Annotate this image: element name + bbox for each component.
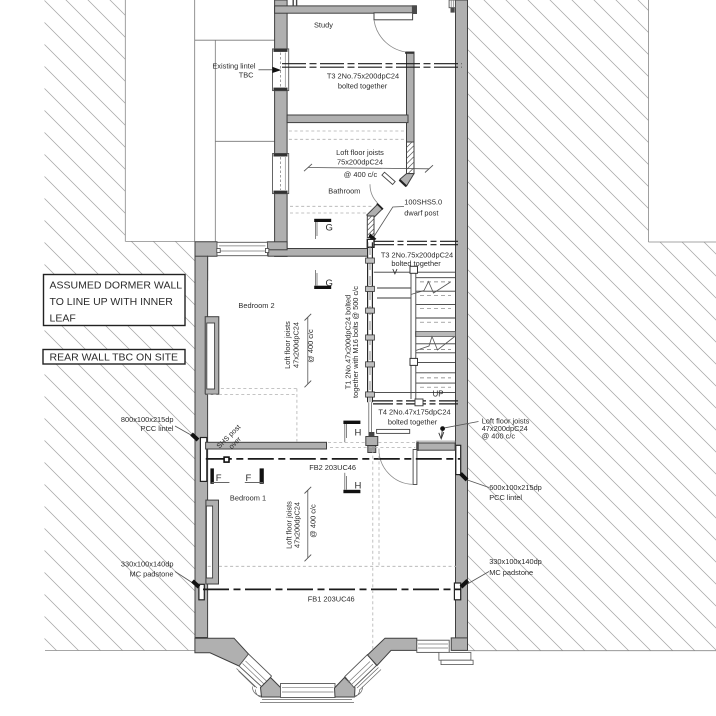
svg-text:@ 400 c/c: @ 400 c/c bbox=[309, 504, 318, 538]
svg-text:PCC lintel: PCC lintel bbox=[141, 424, 174, 433]
svg-text:REAR WALL TBC ON SITE: REAR WALL TBC ON SITE bbox=[50, 352, 179, 364]
svg-text:330x100x140dp: 330x100x140dp bbox=[121, 560, 174, 569]
svg-text:PCC lintel: PCC lintel bbox=[489, 493, 522, 502]
svg-text:330x100x140dp: 330x100x140dp bbox=[489, 557, 542, 566]
svg-text:G: G bbox=[326, 223, 333, 234]
svg-text:Bedroom 2: Bedroom 2 bbox=[238, 301, 274, 310]
svg-text:T3 2No.75x200dpC24: T3 2No.75x200dpC24 bbox=[327, 72, 399, 81]
svg-text:bolted together: bolted together bbox=[388, 418, 438, 427]
svg-text:MC padstone: MC padstone bbox=[489, 568, 533, 577]
svg-text:LEAF: LEAF bbox=[50, 313, 76, 325]
svg-text:F: F bbox=[216, 473, 222, 484]
svg-text:@ 400 c/c: @ 400 c/c bbox=[344, 170, 378, 179]
svg-text:FB1 203UC46: FB1 203UC46 bbox=[308, 595, 355, 604]
svg-text:bolted together: bolted together bbox=[391, 259, 441, 268]
svg-text:600x100x215dp: 600x100x215dp bbox=[489, 483, 542, 492]
svg-text:@ 400 c/c: @ 400 c/c bbox=[306, 329, 315, 363]
svg-text:47x200dpC24: 47x200dpC24 bbox=[293, 502, 302, 548]
svg-text:ASSUMED DORMER WALL: ASSUMED DORMER WALL bbox=[50, 280, 183, 292]
svg-text:Bathroom: Bathroom bbox=[328, 187, 360, 196]
svg-text:together with M16 bolts @ 500: together with M16 bolts @ 500 c/c bbox=[351, 286, 360, 398]
svg-text:F: F bbox=[246, 473, 252, 484]
svg-text:UP: UP bbox=[433, 390, 444, 399]
svg-text:H: H bbox=[355, 481, 362, 492]
svg-text:@ 400 c/c: @ 400 c/c bbox=[482, 432, 516, 441]
svg-text:Existing lintel: Existing lintel bbox=[212, 62, 255, 71]
svg-text:TBC: TBC bbox=[239, 71, 254, 80]
svg-text:800x100x215dp: 800x100x215dp bbox=[121, 415, 174, 424]
svg-text:Loft floor joists: Loft floor joists bbox=[336, 148, 384, 157]
svg-text:TO LINE UP WITH INNER: TO LINE UP WITH INNER bbox=[50, 296, 174, 308]
svg-text:47x200dpC24: 47x200dpC24 bbox=[292, 322, 301, 368]
svg-text:G: G bbox=[326, 278, 333, 289]
svg-text:T4 2No.47x175dpC24: T4 2No.47x175dpC24 bbox=[378, 408, 450, 417]
svg-text:75x200dpC24: 75x200dpC24 bbox=[337, 158, 383, 167]
svg-text:MC padstone: MC padstone bbox=[130, 570, 174, 579]
svg-text:Study: Study bbox=[314, 21, 333, 30]
svg-text:bolted together: bolted together bbox=[338, 82, 388, 91]
svg-text:100SHS5.0: 100SHS5.0 bbox=[404, 198, 442, 207]
svg-text:H: H bbox=[355, 428, 362, 439]
svg-text:Bedroom 1: Bedroom 1 bbox=[230, 493, 266, 502]
svg-text:FB2 203UC46: FB2 203UC46 bbox=[309, 463, 356, 472]
svg-text:dwarf post: dwarf post bbox=[404, 208, 438, 217]
